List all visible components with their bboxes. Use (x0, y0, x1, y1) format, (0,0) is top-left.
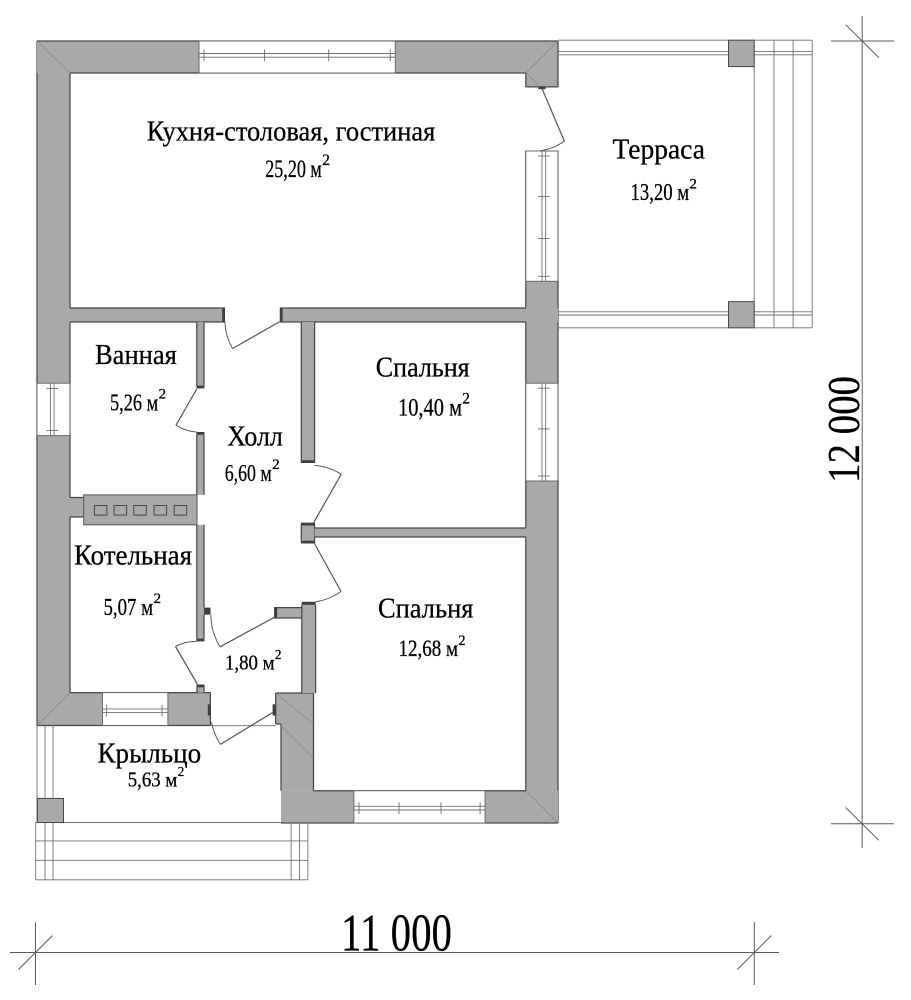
svg-text:2: 2 (275, 647, 282, 662)
svg-text:Кухня-столовая, гостиная: Кухня-столовая, гостиная (147, 116, 436, 148)
svg-text:12,68 м: 12,68 м (399, 636, 459, 661)
svg-text:Котельная: Котельная (74, 539, 192, 571)
svg-text:5,26 м: 5,26 м (110, 390, 158, 417)
svg-text:2: 2 (689, 177, 697, 193)
svg-text:10,40 м: 10,40 м (398, 395, 462, 422)
svg-text:6,60 м: 6,60 м (225, 460, 272, 487)
svg-text:12 000: 12 000 (818, 376, 869, 483)
svg-text:Терраса: Терраса (613, 134, 706, 166)
svg-text:2: 2 (462, 391, 470, 408)
svg-text:11 000: 11 000 (341, 905, 452, 963)
svg-text:1,80 м: 1,80 м (225, 650, 275, 674)
svg-text:2: 2 (153, 590, 161, 607)
svg-text:2: 2 (272, 456, 280, 473)
svg-text:5,63 м: 5,63 м (128, 767, 178, 791)
svg-text:2: 2 (178, 764, 185, 779)
svg-text:2: 2 (159, 386, 167, 403)
svg-text:2: 2 (458, 633, 465, 649)
svg-text:5,07 м: 5,07 м (104, 594, 154, 621)
svg-text:Ванная: Ванная (95, 339, 177, 371)
svg-text:2: 2 (322, 152, 330, 169)
svg-text:25,20 м: 25,20 м (265, 156, 322, 183)
svg-text:Холл: Холл (227, 421, 282, 453)
svg-text:13,20 м: 13,20 м (631, 179, 690, 206)
svg-text:Спальня: Спальня (378, 593, 473, 625)
svg-text:Спальня: Спальня (376, 351, 470, 383)
svg-text:Крыльцо: Крыльцо (98, 738, 202, 770)
